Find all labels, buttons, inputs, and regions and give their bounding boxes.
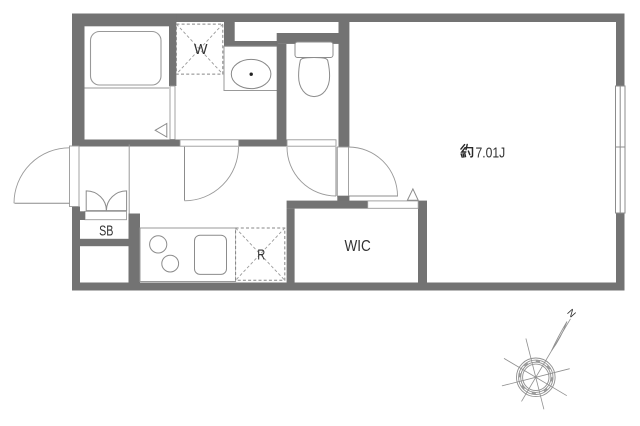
svg-text:W: W xyxy=(194,42,208,58)
svg-text:WIC: WIC xyxy=(345,238,371,255)
svg-text:R: R xyxy=(257,248,265,264)
svg-text:7.01J: 7.01J xyxy=(476,145,506,161)
svg-text:SB: SB xyxy=(99,222,113,239)
